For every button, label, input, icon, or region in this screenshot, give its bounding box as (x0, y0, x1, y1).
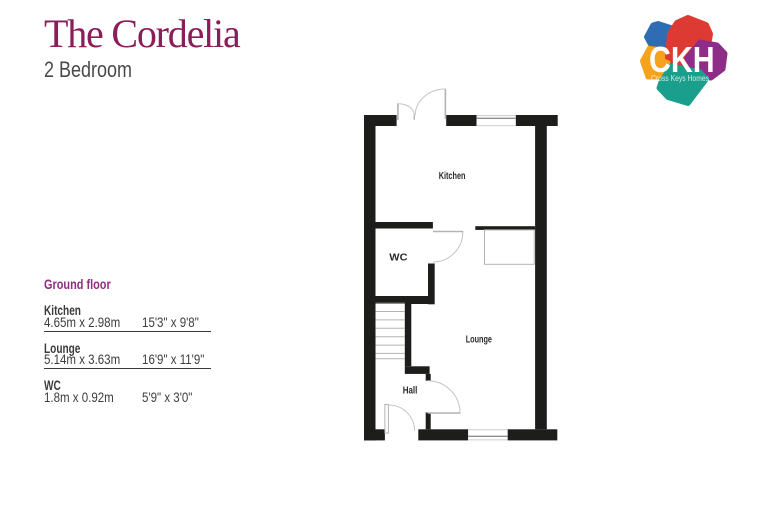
svg-text:Kitchen: Kitchen (439, 171, 466, 182)
svg-text:Lounge: Lounge (466, 334, 493, 345)
svg-text:WC: WC (389, 253, 407, 264)
svg-text:Hall: Hall (403, 385, 418, 396)
